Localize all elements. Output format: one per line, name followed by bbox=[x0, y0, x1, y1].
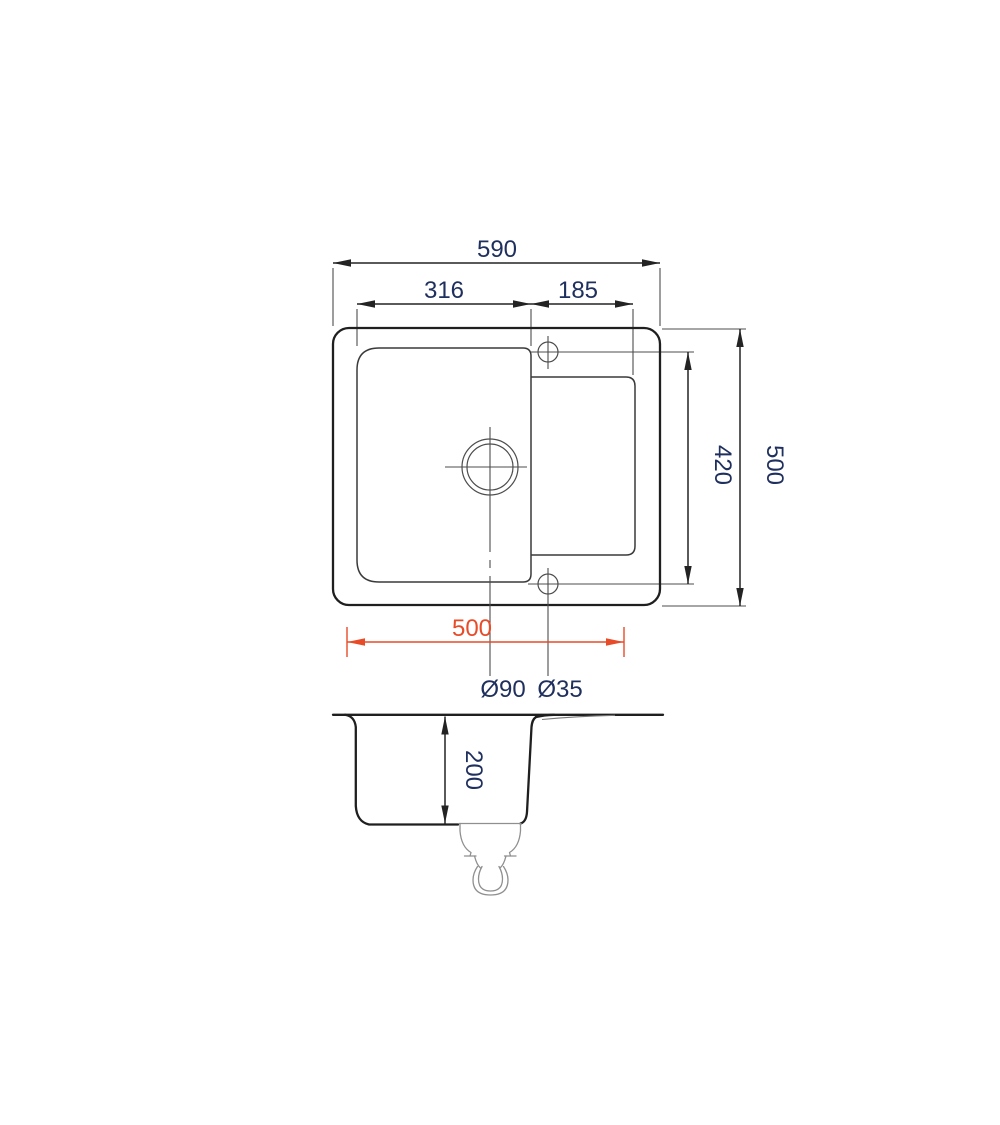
dim-overall-width-label: 590 bbox=[477, 236, 517, 263]
section-view: 200 bbox=[333, 715, 663, 895]
drain-trap bbox=[459, 824, 521, 896]
bowl-section-left-wall bbox=[345, 715, 458, 825]
trap-ubend-inner bbox=[479, 867, 503, 892]
dim-bowl-width-label: 316 bbox=[424, 277, 464, 304]
dimensions-black: 590 316 185 420 500 Ø90 Ø35 bbox=[333, 236, 788, 703]
trap-right-side bbox=[510, 824, 521, 857]
cutout-width-label: 500 bbox=[452, 615, 492, 642]
dim-holes-span-label: 420 bbox=[709, 445, 736, 485]
bowl-outline bbox=[357, 348, 531, 582]
dim-bowl-depth-label: 200 bbox=[460, 750, 487, 790]
technical-drawing-page: 590 316 185 420 500 Ø90 Ø35 500 bbox=[0, 0, 1000, 1125]
trap-left-side bbox=[460, 824, 471, 857]
drain-diameter-label: Ø90 bbox=[480, 676, 525, 703]
dim-overall-depth-label: 500 bbox=[761, 445, 788, 485]
top-view bbox=[333, 268, 746, 676]
sink-technical-drawing: 590 316 185 420 500 Ø90 Ø35 500 bbox=[0, 0, 1000, 1125]
drainer-outline bbox=[532, 377, 636, 555]
bowl-section-right-wall bbox=[521, 717, 537, 824]
dim-drainer-width-label: 185 bbox=[558, 277, 598, 304]
tap-diameter-label: Ø35 bbox=[537, 676, 582, 703]
